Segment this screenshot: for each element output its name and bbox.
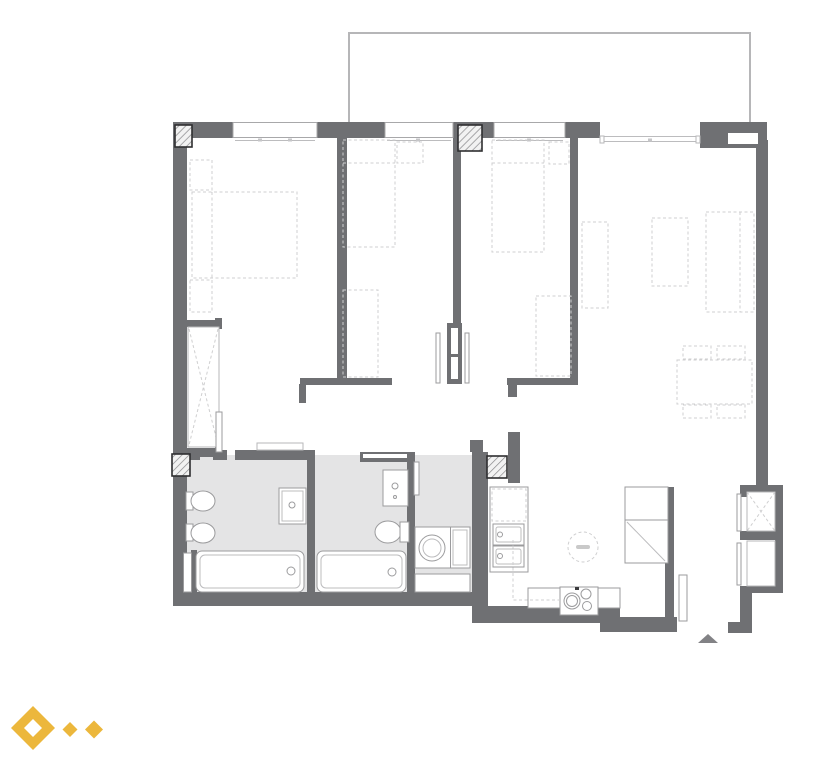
brochure-page: La Llave de Oro PROMOTORS · CONSTRUCTORS… xyxy=(0,0,828,768)
bathtub xyxy=(317,551,406,592)
bedroom-2-door-leaf xyxy=(436,333,440,383)
bed-bedroom-1 xyxy=(192,192,297,278)
dining-chair xyxy=(683,405,711,418)
sofa xyxy=(706,212,754,312)
wardrobe-bedroom-1 xyxy=(188,327,219,447)
dresser xyxy=(536,296,571,376)
entry-closet-lower xyxy=(747,541,775,586)
toilet xyxy=(375,521,401,543)
sideboard xyxy=(582,222,608,308)
bed-bedroom-2 xyxy=(343,140,395,247)
logo-diamond-small-2 xyxy=(85,721,103,739)
kitchen-circle-label xyxy=(576,545,590,549)
nightstand xyxy=(549,142,569,164)
nightstand xyxy=(397,142,423,163)
bathroom-1-door-leaf xyxy=(216,412,222,452)
brand-logo xyxy=(0,690,120,768)
dresser xyxy=(343,290,378,377)
closet-door-leaf xyxy=(737,543,741,585)
window-bedroom-2 xyxy=(385,123,453,142)
toilet-tank xyxy=(400,522,409,542)
window-bedroom-3 xyxy=(494,123,565,142)
nightstand xyxy=(190,160,212,190)
dining-chair xyxy=(717,346,745,359)
balcony-outline xyxy=(349,33,750,122)
entrance-arrow xyxy=(698,634,718,643)
kitchen-fixtures xyxy=(490,487,668,615)
floor-plan-svg xyxy=(0,0,828,690)
closet-door-leaf xyxy=(737,494,741,531)
nightstand xyxy=(190,280,212,312)
tall-kitchen-unit xyxy=(625,487,668,563)
window-living-room xyxy=(600,136,700,143)
footer: La Llave de Oro PROMOTORS · CONSTRUCTORS… xyxy=(0,690,828,768)
tv-unit xyxy=(652,218,688,286)
washbasin-cabinet xyxy=(279,488,306,524)
toilet xyxy=(191,491,215,511)
bidet xyxy=(191,523,215,543)
bathtub xyxy=(196,551,304,592)
laundry-door-leaf xyxy=(414,462,419,495)
dining-table xyxy=(677,360,752,404)
bedroom-3-door-leaf xyxy=(465,333,469,383)
dining-chair xyxy=(717,405,745,418)
window-bedroom-1 xyxy=(233,123,317,142)
dining-chair xyxy=(683,346,711,359)
laundry-fixtures xyxy=(415,527,470,592)
floor-plan-area xyxy=(0,0,828,690)
bed-bedroom-3 xyxy=(492,140,544,252)
furniture xyxy=(190,140,754,418)
washbasin-cabinet xyxy=(383,470,408,506)
entrance-door-leaf xyxy=(679,575,687,621)
cooktop xyxy=(560,587,598,615)
logo-diamond-small-1 xyxy=(63,722,78,737)
hallway-cabinet xyxy=(257,443,303,450)
